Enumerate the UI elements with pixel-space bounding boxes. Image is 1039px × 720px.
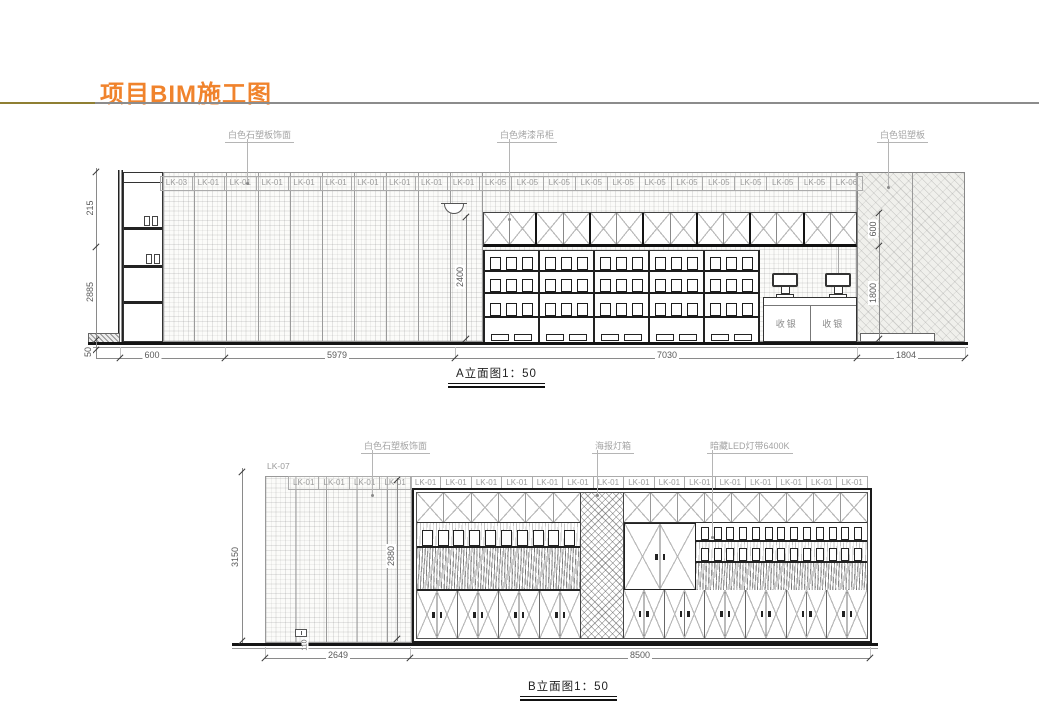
panel-code-label: LK-01	[352, 177, 384, 190]
product-box	[803, 527, 811, 540]
product-box	[726, 279, 737, 292]
counter-top	[764, 298, 856, 306]
double-door	[499, 591, 540, 638]
panel-code-label: LK-05	[512, 177, 544, 190]
flat-box	[624, 334, 642, 341]
product-box	[600, 303, 611, 316]
dim-line	[96, 358, 965, 359]
flat-box	[546, 334, 564, 341]
caption-underline	[448, 386, 545, 389]
cabinet-door	[777, 213, 804, 244]
double-door	[827, 590, 867, 638]
panel-code-label: LK-05	[608, 177, 640, 190]
product-box	[600, 257, 611, 270]
flat-box	[656, 334, 674, 341]
callout-hanging-cabinet-a: 白色烤漆吊柜	[497, 128, 557, 143]
panel-code-label: LK-05	[735, 177, 767, 190]
callout-finish-panel-a: 白色石塑板饰面	[225, 128, 294, 143]
panel-code-label: LK-01	[225, 177, 257, 190]
double-door	[665, 590, 706, 638]
flat-box	[601, 334, 619, 341]
product-box	[739, 548, 747, 561]
product-box	[710, 257, 721, 270]
panel-code-label: LK-01	[289, 177, 321, 190]
panel-code-corner: LK-07	[267, 461, 290, 471]
product-box	[701, 527, 709, 540]
product-box	[490, 257, 501, 270]
shelf-row	[595, 272, 648, 294]
lower-cabinet-row	[624, 590, 867, 638]
cabinet-door	[814, 493, 841, 522]
dim-value: 2400	[455, 265, 465, 289]
panel-code-label: LK-05	[576, 177, 608, 190]
panel-code-label: LK-01	[289, 477, 319, 489]
callout-poster-lightbox: 海报灯箱	[592, 439, 634, 454]
product-box	[687, 279, 698, 292]
dim-value: 600	[868, 219, 878, 238]
product-box	[752, 548, 760, 561]
product-box	[485, 530, 496, 546]
double-door	[746, 590, 787, 638]
cabinet-door	[841, 493, 867, 522]
product-box	[790, 548, 798, 561]
product-shelf	[696, 523, 867, 542]
double-door	[417, 591, 458, 638]
outlet-symbol	[295, 629, 307, 637]
caption-underline	[520, 699, 617, 702]
panel-code-label: LK-05	[703, 177, 735, 190]
shelving-bay	[540, 251, 595, 342]
cabinet-shelf	[124, 265, 162, 268]
panel-code-label: LK-01	[350, 477, 380, 489]
product-box	[739, 527, 747, 540]
wall-unit-b	[412, 488, 872, 643]
cabinet-door	[732, 493, 759, 522]
dim-value: 1800	[868, 281, 878, 305]
lower-cabinet-row	[417, 591, 580, 638]
product-box	[506, 279, 517, 292]
product-box	[687, 257, 698, 270]
callout-leader	[597, 450, 598, 495]
product-box	[422, 530, 433, 546]
floor-line-a-thin	[88, 347, 968, 348]
product-box	[616, 303, 627, 316]
product-box	[490, 279, 501, 292]
product-box	[790, 527, 798, 540]
callout-aluminium-panel-a: 白色铝塑板	[877, 128, 928, 143]
shelf-item	[152, 216, 158, 226]
callout-dot	[246, 182, 249, 185]
product-box	[854, 527, 862, 540]
shelving-bay	[485, 251, 540, 342]
callout-dot	[596, 494, 599, 497]
product-box	[710, 279, 721, 292]
product-box	[522, 257, 533, 270]
product-box	[742, 303, 753, 316]
garment-rack	[417, 548, 580, 591]
shelf-item	[146, 254, 152, 264]
floor-line-b	[232, 643, 878, 646]
shelf-row	[485, 318, 538, 342]
tall-door	[624, 523, 696, 590]
product-box	[726, 548, 734, 561]
shelf-row	[540, 318, 593, 342]
product-box	[816, 548, 824, 561]
flat-box	[711, 334, 729, 341]
middle-section	[624, 523, 867, 590]
callout-leader	[372, 450, 373, 495]
product-box	[726, 257, 737, 270]
dim-line	[397, 478, 398, 641]
product-row	[696, 542, 867, 561]
monitor-screen	[772, 273, 798, 287]
shelf-row	[650, 272, 703, 294]
cabinet-door	[698, 213, 724, 244]
product-box	[841, 527, 849, 540]
callout-dot	[711, 536, 714, 539]
product-box	[522, 303, 533, 316]
product-box	[506, 257, 517, 270]
caption-text: B立面图1：50	[520, 678, 617, 697]
product-box	[522, 279, 533, 292]
product-box	[854, 548, 862, 561]
dim-value: 7030	[655, 350, 679, 360]
poster-lightbox	[580, 493, 624, 638]
product-box	[545, 303, 556, 316]
shelf-stack	[696, 523, 867, 590]
callout-leader	[247, 139, 248, 183]
product-box	[632, 279, 643, 292]
product-box	[742, 257, 753, 270]
title-rule	[0, 102, 1039, 104]
product-box	[816, 527, 824, 540]
product-box	[517, 530, 528, 546]
double-door	[705, 590, 746, 638]
product-box	[841, 548, 849, 561]
upper-cabinet-row	[417, 493, 580, 523]
callout-dot	[887, 186, 890, 189]
dim-value: 600	[142, 350, 161, 360]
double-door	[540, 591, 580, 638]
shelf-row	[540, 251, 593, 272]
product-box	[765, 527, 773, 540]
dim-line	[265, 658, 870, 659]
cabinet-door	[617, 213, 644, 244]
cabinet-door	[554, 493, 580, 522]
dim-line	[879, 211, 880, 341]
unit-left-section	[417, 493, 580, 638]
dim-tick	[961, 354, 968, 361]
cabinet-door	[472, 493, 499, 522]
product-box	[803, 548, 811, 561]
panel-code-label: LK-05	[767, 177, 799, 190]
garment-rack	[696, 563, 867, 590]
product-box	[742, 279, 753, 292]
wall-unit-inner	[416, 492, 868, 639]
panel-base-strip	[860, 333, 935, 342]
product-box	[752, 527, 760, 540]
product-box	[561, 279, 572, 292]
shelving-bay	[650, 251, 705, 342]
product-box	[655, 303, 666, 316]
product-box	[564, 530, 575, 546]
panel-code-label: LK-05	[672, 177, 704, 190]
product-box	[561, 257, 572, 270]
dim-value: 2649	[326, 650, 350, 660]
shelf-row	[595, 294, 648, 318]
cabinet-door	[499, 493, 526, 522]
shelf-row	[540, 294, 593, 318]
callout-dot	[371, 494, 374, 497]
shelf-row	[650, 251, 703, 272]
product-box	[561, 303, 572, 316]
cabinet-door	[526, 493, 553, 522]
shelf-row	[705, 318, 758, 342]
panel-joint	[912, 173, 913, 341]
double-door	[624, 590, 665, 638]
product-box	[632, 303, 643, 316]
shelf-item	[154, 254, 160, 264]
product-box	[765, 548, 773, 561]
callout-led-strip: 暗藏LED灯带6400K	[707, 439, 793, 454]
cabinet-door	[484, 213, 510, 244]
upper-cabinet-row	[624, 493, 867, 523]
product-box	[490, 303, 501, 316]
monitor-screen	[825, 273, 851, 287]
shelf-row	[485, 251, 538, 272]
pendant-line	[838, 247, 839, 273]
product-box	[577, 257, 588, 270]
product-box	[453, 530, 464, 546]
product-box	[469, 530, 480, 546]
shelf-row	[540, 272, 593, 294]
monitor-stand	[781, 287, 790, 294]
shelving-bay	[595, 251, 650, 342]
shelf-row	[650, 294, 703, 318]
flat-box	[734, 334, 752, 341]
product-row	[417, 523, 580, 546]
cabinet-door	[787, 493, 814, 522]
cabinet-door	[591, 213, 617, 244]
flat-box	[491, 334, 509, 341]
product-box	[726, 303, 737, 316]
product-box	[671, 257, 682, 270]
title-rule-accent	[0, 102, 95, 104]
product-box	[671, 303, 682, 316]
caption-elevation-a: A立面图1：50	[448, 364, 545, 388]
dim-value: 3150	[230, 545, 240, 569]
shelf-row	[705, 294, 758, 318]
product-box	[501, 530, 512, 546]
flat-box	[679, 334, 697, 341]
cabinet-door	[705, 493, 732, 522]
floor-line-a	[88, 342, 968, 345]
panel-code-label: LK-01	[448, 177, 480, 190]
panel-code-label: LK-05	[544, 177, 576, 190]
callout-leader	[712, 450, 713, 537]
cashier-counter: 收银收银	[763, 297, 857, 342]
product-box	[545, 257, 556, 270]
product-box	[600, 279, 611, 292]
cabinet-door	[671, 213, 698, 244]
caption-elevation-b: B立面图1：50	[520, 677, 617, 701]
shelving-a	[483, 250, 760, 342]
product-box	[545, 279, 556, 292]
panel-code-label: LK-05	[640, 177, 672, 190]
flat-box	[514, 334, 532, 341]
panel-code-label: LK-01	[257, 177, 289, 190]
cabinet-door	[831, 213, 856, 244]
dim-value: 5979	[325, 350, 349, 360]
double-door	[787, 590, 828, 638]
product-box	[777, 548, 785, 561]
flat-box	[569, 334, 587, 341]
panel-code-label: LK-01	[416, 177, 448, 190]
shelf-row	[485, 294, 538, 318]
dim-value: 50	[83, 345, 93, 359]
dim-tick	[866, 654, 873, 661]
panel-code-label: LK-05	[799, 177, 831, 190]
product-box	[687, 303, 698, 316]
outlet-pin	[301, 631, 302, 635]
product-box	[548, 530, 559, 546]
panel-code-label: LK-01	[319, 477, 349, 489]
shelf-row	[595, 251, 648, 272]
wall-panel-joints-a	[163, 172, 483, 342]
product-box	[714, 548, 722, 561]
floor-line-b-thin	[232, 648, 878, 649]
unit-right-section	[624, 493, 867, 638]
cabinet-door	[678, 493, 705, 522]
panel-code-label: LK-01	[321, 177, 353, 190]
product-box	[577, 303, 588, 316]
panel-code-label: LK-01	[193, 177, 225, 190]
product-row	[696, 523, 867, 540]
shelf-row	[650, 318, 703, 342]
dim-line	[242, 468, 243, 643]
cashier-monitor	[771, 273, 799, 298]
callout-leader	[888, 139, 889, 187]
cabinet-door	[805, 213, 831, 244]
shelving-bay	[705, 251, 758, 342]
panel-code-strip-a: LK-03LK-01LK-01LK-01LK-01LK-01LK-01LK-01…	[160, 176, 863, 191]
product-box	[777, 527, 785, 540]
product-box	[714, 527, 722, 540]
panel-code-label: LK-03	[161, 177, 193, 190]
dim-value: 2880	[386, 544, 396, 568]
monitor-stand	[834, 287, 843, 294]
dim-value: 110	[302, 637, 309, 652]
product-box	[577, 279, 588, 292]
cabinet-shelf	[124, 227, 162, 230]
shelf-row	[595, 318, 648, 342]
panel-code-label: LK-06	[831, 177, 862, 190]
product-box	[726, 527, 734, 540]
dim-value: 2885	[85, 280, 95, 304]
slide-page: 项目BIM施工图 LK-03LK-01LK-01LK-01LK-01LK-01L…	[0, 0, 1039, 720]
cabinet-door	[760, 493, 787, 522]
product-box	[616, 279, 627, 292]
product-box	[632, 257, 643, 270]
cabinet-shelf	[124, 301, 162, 304]
cabinet-door	[751, 213, 777, 244]
shelf-item	[144, 216, 150, 226]
double-door	[458, 591, 499, 638]
product-box	[438, 530, 449, 546]
cabinet-door	[537, 213, 563, 244]
dim-value: 1804	[894, 350, 918, 360]
counter-front: 收银收银	[764, 306, 856, 341]
product-box	[671, 279, 682, 292]
dim-value: 215	[85, 198, 95, 217]
product-box	[655, 279, 666, 292]
display-band	[417, 523, 580, 548]
product-box	[655, 257, 666, 270]
dim-line	[96, 168, 97, 358]
panel-code-label: LK-01	[384, 177, 416, 190]
side-cabinet-section	[123, 172, 163, 342]
product-box	[533, 530, 544, 546]
cabinet-door	[724, 213, 751, 244]
product-box	[710, 303, 721, 316]
aluminium-panel-a	[857, 172, 965, 342]
cashier-label: 收银	[811, 306, 857, 341]
product-shelf	[696, 542, 867, 563]
cabinet-door	[444, 493, 471, 522]
cashier-monitor	[824, 273, 852, 298]
product-box	[506, 303, 517, 316]
cabinet-door	[651, 493, 678, 522]
product-box	[616, 257, 627, 270]
product-box	[829, 548, 837, 561]
product-box	[829, 527, 837, 540]
cashier-label: 收银	[764, 306, 811, 341]
shelf-row	[485, 272, 538, 294]
dim-line	[466, 215, 467, 341]
callout-leader	[509, 139, 510, 219]
caption-text: A立面图1：50	[448, 365, 545, 384]
cabinet-top-line	[124, 182, 162, 183]
cabinet-door	[564, 213, 591, 244]
shelf-row	[705, 251, 758, 272]
cabinet-door	[624, 493, 651, 522]
cabinet-door	[417, 493, 444, 522]
cabinet-door	[644, 213, 670, 244]
cabinet-door	[510, 213, 537, 244]
shelf-row	[705, 272, 758, 294]
hanging-cabinets-a	[483, 212, 857, 247]
panel-code-label: LK-05	[480, 177, 512, 190]
callout-dot	[508, 218, 511, 221]
dim-value: 8500	[628, 650, 652, 660]
product-box	[701, 548, 709, 561]
